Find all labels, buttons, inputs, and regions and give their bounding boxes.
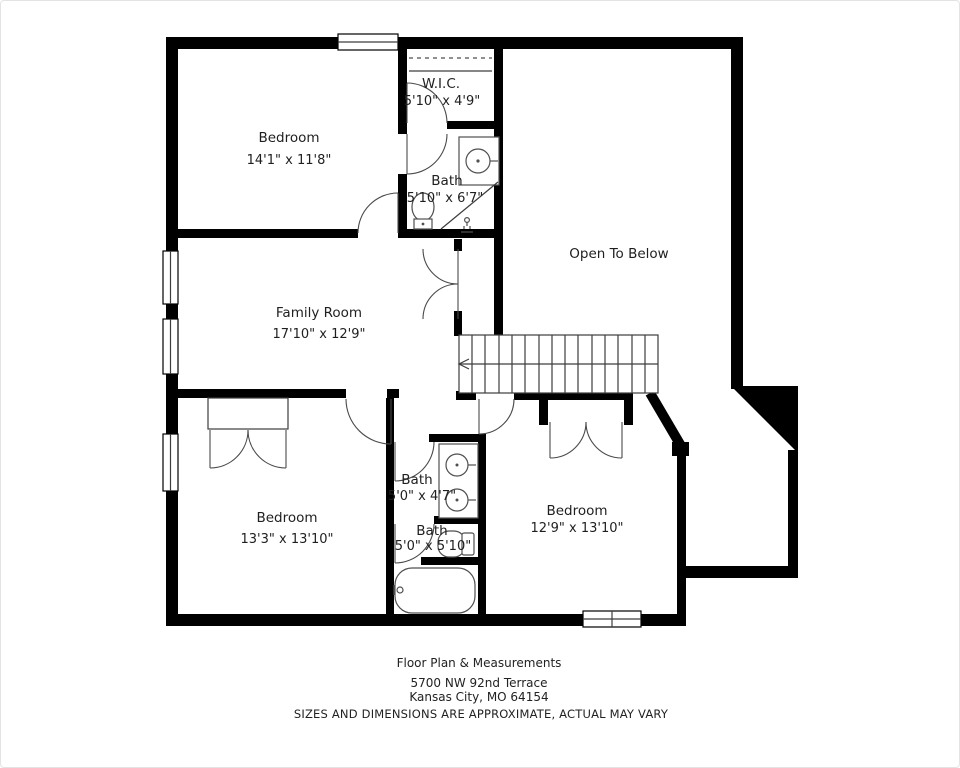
window-top	[338, 34, 398, 50]
window-left-1	[163, 251, 178, 304]
door-bath-top	[407, 134, 447, 174]
footer-disclaimer: SIZES AND DIMENSIONS ARE APPROXIMATE, AC…	[294, 707, 669, 721]
window-left-2	[163, 319, 178, 374]
room-label-family-room: Family Room	[276, 305, 362, 321]
room-label-bedroom-3: Bedroom	[546, 503, 607, 519]
room-label-open-to-below: Open To Below	[569, 246, 668, 262]
room-label-bath-lower: Bath	[416, 523, 447, 539]
floorplan-image: Bedroom 14'1" x 11'8" W.I.C. 5'10" x 4'9…	[0, 0, 960, 768]
wic-closet-rod	[409, 58, 492, 71]
room-label-bath-mid: Bath	[401, 472, 432, 488]
room-dims-bedroom-3: 12'9" x 13'10"	[531, 521, 624, 536]
room-label-bath-top: Bath	[431, 173, 462, 189]
footer-address-line2: Kansas City, MO 64154	[409, 690, 548, 704]
vanity-sink-icon	[459, 137, 499, 185]
window-left-3	[163, 434, 178, 491]
door-bedroom3-hall	[479, 399, 514, 434]
room-label-bedroom-2: Bedroom	[256, 510, 317, 526]
staircase	[459, 335, 658, 393]
door-family-double	[423, 249, 458, 319]
window-bottom	[583, 611, 641, 627]
exterior-corner-triangle	[731, 386, 798, 453]
door-bedroom2	[346, 399, 391, 444]
closet-doors-bedroom2	[208, 398, 288, 468]
room-dims-bath-mid: 5'0" x 4'7"	[388, 489, 456, 504]
room-dims-bath-lower: 5'0" x 5'10"	[395, 539, 471, 554]
room-dims-bath-top: 5'10" x 6'7"	[407, 191, 483, 206]
closet-doors-bedroom3	[550, 422, 622, 458]
footer-address-line1: 5700 NW 92nd Terrace	[411, 676, 548, 690]
footer-title: Floor Plan & Measurements	[397, 656, 562, 670]
footer: Floor Plan & Measurements 5700 NW 92nd T…	[294, 656, 669, 721]
room-label-bedroom-1: Bedroom	[258, 130, 319, 146]
double-vanity-icon	[439, 444, 478, 518]
room-dims-bedroom-2: 13'3" x 13'10"	[241, 532, 334, 547]
room-label-wic: W.I.C.	[422, 76, 460, 92]
room-dims-bedroom-1: 14'1" x 11'8"	[247, 153, 332, 168]
room-dims-family-room: 17'10" x 12'9"	[273, 327, 366, 342]
room-dims-wic: 5'10" x 4'9"	[404, 94, 480, 109]
shower-wall	[441, 182, 498, 232]
bathtub-icon	[394, 568, 475, 613]
door-bedroom1	[358, 193, 398, 233]
floorplan-svg: Bedroom 14'1" x 11'8" W.I.C. 5'10" x 4'9…	[1, 1, 960, 768]
